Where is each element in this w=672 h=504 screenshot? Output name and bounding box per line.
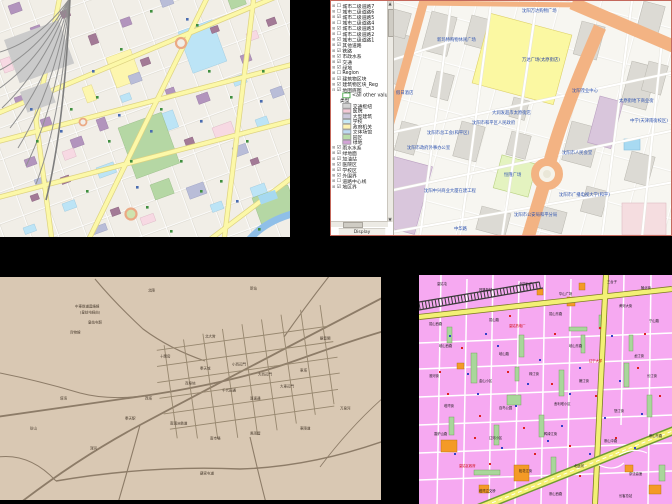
map-label: 皇姑屯 (437, 283, 447, 286)
map-label: 塔湾街 (444, 405, 454, 408)
map-label: 鸭绿江街 (544, 433, 557, 436)
map-label: 中東鉄道連絡線 (75, 305, 99, 308)
map-label: 小西辺門 (232, 363, 246, 366)
map-label: 大東辺門 (280, 385, 294, 388)
map-label: 貨物線 (70, 331, 80, 334)
map-label: 南満洲鉄道 (170, 422, 187, 425)
map-label: 黄河大街 (619, 305, 632, 308)
map-label: 嫩江街 (579, 380, 589, 383)
map-label: 渾河 (90, 447, 97, 450)
map-label: 沈阳万达购物广场 (522, 9, 557, 13)
desktop: ⊞ ☐ 城市二级道路7 ⊞ ☐ 城市二级道路6 ⊞ ☑ (0, 0, 672, 504)
map-label: 昆山西路 (429, 323, 442, 326)
map-label: 千代田通 (222, 389, 236, 392)
map-label: 浪速通 (250, 397, 260, 400)
layers-panel[interactable]: ⊞ ☐ 城市二级道路7 ⊞ ☐ 城市二级道路6 ⊞ ☑ (331, 1, 394, 235)
map-label: 中学(天津南街校区) (630, 119, 668, 123)
toc-layer-list: ⊞ ☐ 城市二级道路7 ⊞ ☐ 城市二级道路6 ⊞ ☑ (332, 3, 386, 93)
map-label: 昆山路 (489, 319, 499, 322)
map-label: 観音閣 (320, 337, 330, 340)
map-label: 西塔 (145, 397, 152, 400)
map-label: 崇山西路 (549, 493, 562, 496)
scroll-up-arrow[interactable]: ▲ (388, 1, 392, 6)
map-label: 商埠地 (185, 382, 195, 385)
toc-vertical-scrollbar[interactable]: ▲ ▼ (387, 1, 393, 222)
map-label: 金山小区 (479, 380, 492, 383)
map-label: 假日酒店 (396, 91, 413, 95)
legend-list: 交通枢纽 医院 大型建筑 (332, 103, 386, 145)
map-label: 铁路新村 (479, 289, 492, 292)
map-label: 岐山路 (499, 353, 509, 356)
gis-app-window: ⊞ ☐ 城市二级道路7 ⊞ ☐ 城市二级道路6 ⊞ ☑ (330, 0, 672, 236)
map-label: 长客总站 (619, 495, 632, 498)
map-label: 华山广场 (559, 293, 572, 296)
toc-display-tab[interactable]: Display (339, 228, 386, 235)
map-label: 東塔 (300, 369, 307, 372)
map-label: 岐山东路 (569, 345, 582, 348)
map-label: 塔湾 (60, 397, 67, 400)
map-label: 珠江街 (529, 373, 539, 376)
map-label: 十間房 (160, 355, 170, 358)
map-label: 崇山东路 (649, 435, 662, 438)
scroll-down-arrow[interactable]: ▼ (388, 217, 392, 222)
map-label: 辽宁大学 (589, 360, 602, 363)
map-label: 奉天駅 (125, 417, 135, 420)
map-label: 万泉河 (340, 407, 350, 410)
map-label: 南市場 (210, 437, 220, 440)
layer-label: 地区界 (342, 183, 356, 190)
scroll-thumb-h[interactable] (343, 222, 363, 228)
map-label: 龙江街 (634, 355, 644, 358)
map-label: 京沈高速 (629, 473, 642, 476)
map-label: 三台子 (607, 281, 617, 284)
map-label: 砂山 (30, 427, 37, 430)
map-label: 沈阳市广播电视大学(和平) (559, 193, 610, 197)
map-label: 新站 (250, 287, 257, 290)
map-label: 长江街 (647, 375, 657, 378)
map-label: 大西辺門 (258, 373, 272, 376)
map-label: 宁山路 (649, 320, 659, 323)
map-label: 辽河小区 (489, 437, 502, 440)
osm-map-graphic (0, 0, 290, 237)
map-label: 百鸟公园 (499, 407, 512, 410)
map-label: 沈阳中兴商业大厦在建工程 (424, 189, 476, 193)
map-label: 舍利塔小区 (554, 403, 571, 406)
map-label: 昆山东路 (549, 313, 562, 316)
antique-map-image: 皇姑屯駅 貨物線 中東鉄道連絡線 (皇姑屯経由) 北陵 新站 北大営 十間房 奉… (0, 277, 381, 500)
map-label: 香炉山路 (434, 433, 447, 436)
map-label: 陵北街 (641, 287, 651, 290)
map-label: 崇山中路 (604, 440, 617, 443)
map-label: 沈阳市总工会(和平区) (427, 131, 469, 135)
gis-map-canvas[interactable]: 沈阳万达购物广场 新玛特购物休闲广场 万达广场(太原街店) 假日酒店 大润发超市… (394, 1, 671, 235)
map-label: 淮河街 (429, 375, 439, 378)
map-label: 蘇家屯道 (200, 472, 214, 475)
map-label: 皇姑热电厂 (509, 325, 526, 328)
map-label: 東陵道 (300, 427, 310, 430)
map-label: 沈阳市和平区人民政府 (472, 121, 515, 125)
map-label: 怒江街 (614, 410, 624, 413)
map-label: 沈阳市政府外事办公室 (407, 146, 450, 150)
toc-horizontal-scrollbar[interactable] (331, 221, 388, 227)
pink-map-image: 皇姑屯 铁路新村 北四台子 华山广场 三台子 陵北街 昆山西路 昆山路 昆山东路 (419, 275, 672, 504)
map-label: 松花江街 (519, 470, 532, 473)
toc-layer-list-bottom: ⊞ ☑ 雨水水系 ⊞ ☑ 绿地面 ⊞ ☑ (332, 145, 386, 190)
map-label: 大润发超市太原街店 (492, 111, 531, 115)
map-label: 北运河 (574, 465, 584, 468)
pink-map-graphic (419, 275, 672, 504)
map-label: 沈阳市公安局和平分局 (514, 213, 557, 217)
osm-map-image (0, 0, 290, 237)
map-label: 万达广场(太原街店) (522, 58, 560, 62)
map-label: 北四台子 (519, 283, 532, 286)
map-label: 新玛特购物休闲广场 (437, 38, 476, 42)
map-label: 太原街地下商业街 (619, 99, 654, 103)
map-label: 中华路 (454, 227, 467, 231)
gis-roundabout (535, 162, 559, 186)
map-label: 北陵 (148, 289, 155, 292)
map-label: 北大営 (205, 335, 215, 338)
antique-map-graphic (0, 277, 381, 500)
map-label: 岐山西路 (439, 345, 452, 348)
map-label: 沈阳茂业中心 (572, 89, 598, 93)
map-label: 皇姑区政府 (459, 465, 476, 468)
map-label: 塔湾立交桥 (479, 490, 496, 493)
map-label: 沈阳市人民会堂 (562, 151, 592, 155)
map-label: (皇姑屯経由) (80, 311, 100, 314)
toc-layer-row[interactable]: ⊞ ☑ 地区界 (332, 184, 386, 190)
map-label: 恒隆广场 (504, 173, 521, 177)
map-label: 皇姑屯駅 (88, 321, 102, 324)
map-label: 風雨壇 (250, 432, 260, 435)
map-label: 奉天城 (200, 367, 210, 370)
